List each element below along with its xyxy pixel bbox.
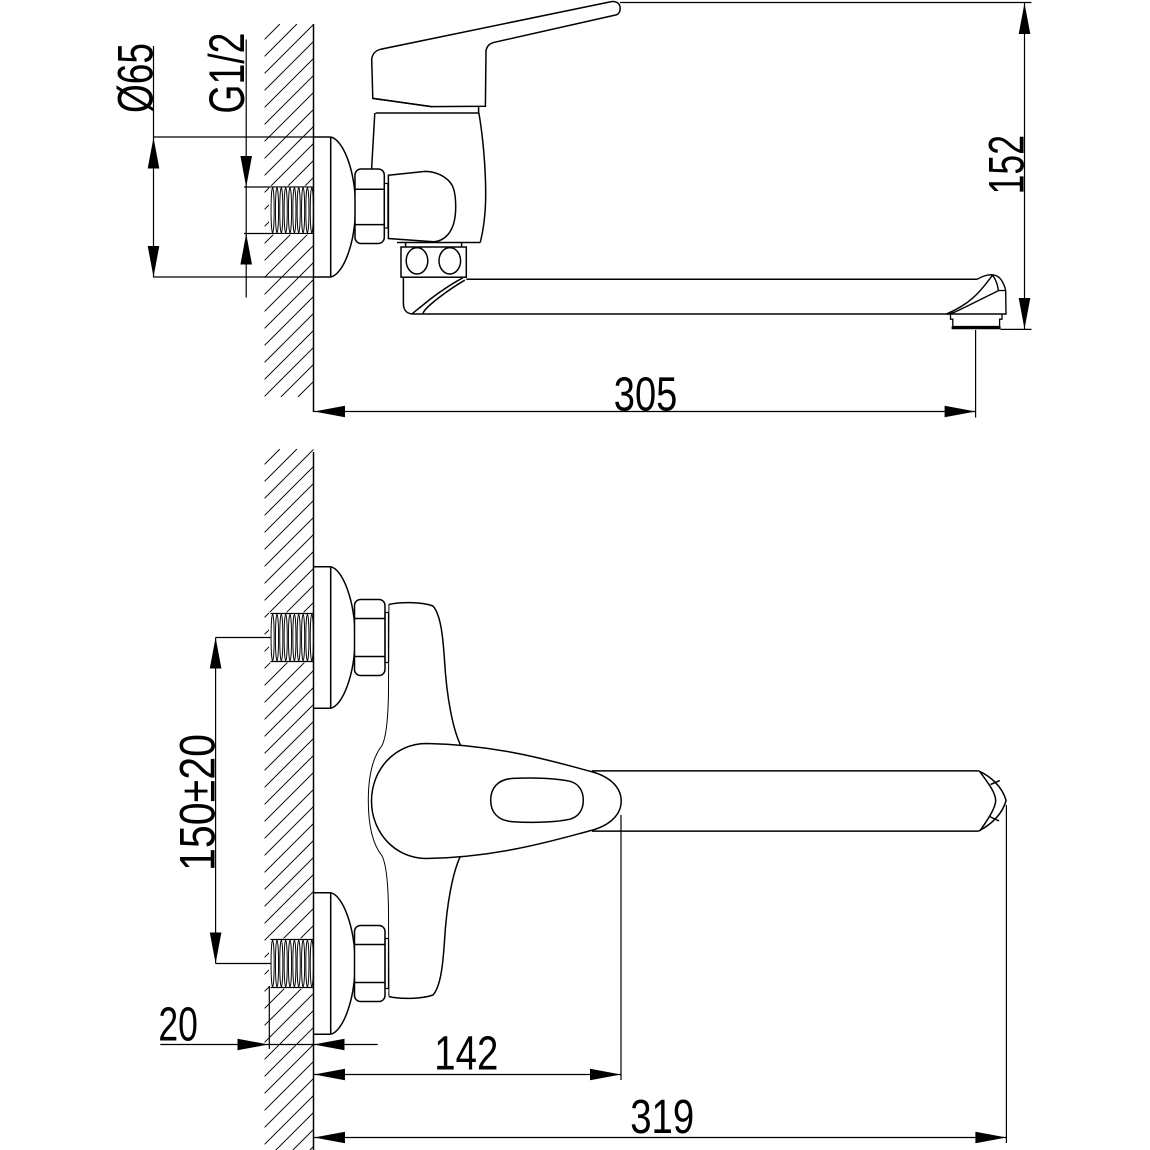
svg-text:G1/2: G1/2	[199, 33, 255, 114]
svg-text:20: 20	[158, 999, 198, 1052]
svg-text:150±20: 150±20	[169, 734, 225, 871]
svg-text:305: 305	[614, 369, 678, 422]
svg-text:319: 319	[630, 1091, 694, 1144]
svg-text:152: 152	[978, 135, 1034, 194]
svg-text:Ø65: Ø65	[108, 43, 164, 113]
svg-text:142: 142	[434, 1027, 498, 1080]
